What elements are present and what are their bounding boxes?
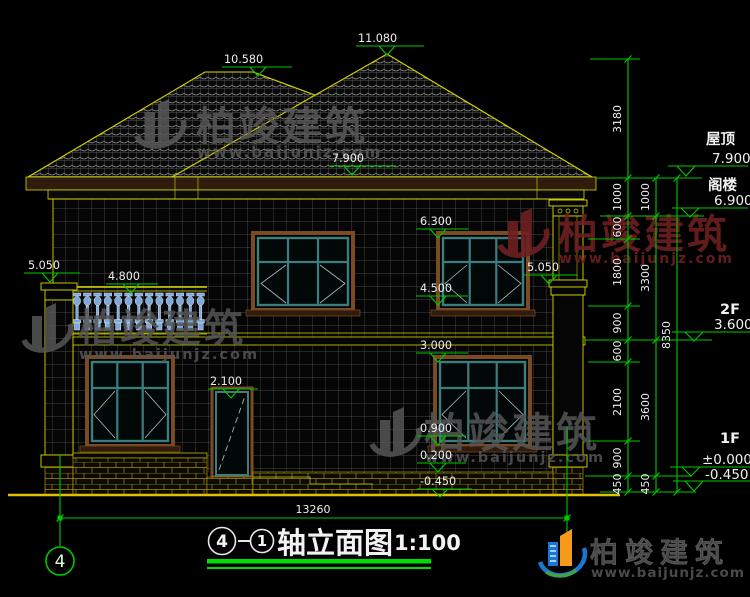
marker-w1-top: 3.000 <box>420 339 452 352</box>
dim-value: 900 <box>611 313 624 334</box>
marker-grade: -0.450 <box>420 475 456 488</box>
level-value-2f: 3.600 <box>714 317 750 333</box>
dim-value: 450 <box>611 474 624 495</box>
brand-logo: 柏竣建筑 www.baijunjz.com <box>540 529 745 581</box>
marker-eave: 7.900 <box>332 152 364 165</box>
dim-value: 3600 <box>639 393 652 421</box>
level-value-attic: 6.900 <box>714 193 750 209</box>
level-label-2f: 2F <box>720 302 740 318</box>
entry-door <box>212 388 252 477</box>
title-axis-from-label: 4 <box>216 532 228 552</box>
title-underline-thick <box>207 559 431 564</box>
window-1f-left <box>80 357 180 452</box>
title-axis-to-label: 1 <box>257 532 267 550</box>
dim-value: 3180 <box>611 105 624 133</box>
elevation-canvas: 柏竣建筑 www.baijunjz.com 柏竣建筑 www.baijunjz.… <box>0 0 750 597</box>
dim-value: 900 <box>611 448 624 469</box>
marker-w2-top: 6.300 <box>420 215 452 228</box>
marker-parapet-right: 5.050 <box>527 261 559 274</box>
window-2f-right <box>431 233 535 316</box>
dim-value: 1000 <box>611 183 624 211</box>
title-scale: 1:100 <box>394 531 461 555</box>
dim-value: 2100 <box>611 388 624 416</box>
dim-value: 3300 <box>639 264 652 292</box>
window-2f-left <box>246 233 360 316</box>
marker-rail: 4.800 <box>108 270 140 283</box>
total-width-dim: 13260 <box>296 503 331 516</box>
watermark-brand: 柏竣建筑 <box>78 307 246 352</box>
level-label-roof: 屋顶 <box>706 131 735 148</box>
title-underline-thin <box>207 567 431 569</box>
level-label-attic: 阁楼 <box>708 176 737 194</box>
marker-ridge-left: 10.580 <box>224 53 263 66</box>
watermark-site: www.baijunjz.com <box>79 347 259 363</box>
brand-logo-site: www.baijunjz.com <box>591 565 745 581</box>
dim-value: 1000 <box>639 183 652 211</box>
dim-value: 1800 <box>611 258 624 286</box>
marker-parapet-left: 5.050 <box>28 259 60 272</box>
marker-porch: 0.200 <box>420 449 452 462</box>
marker-w2-sill: 4.500 <box>420 282 452 295</box>
level-value-1f: ±0.000 <box>702 452 750 468</box>
eave-fascia <box>26 177 596 190</box>
level-value-roof: 7.900 <box>712 151 750 167</box>
title-text: 轴立面图 <box>277 526 393 560</box>
marker-door-top: 2.100 <box>210 375 242 388</box>
axis-bubble-4-label: 4 <box>55 552 66 572</box>
dim-chain-outer: 8350 <box>660 321 673 349</box>
eave-soffit <box>48 190 584 199</box>
marker-w1-sill: 0.900 <box>420 422 452 435</box>
dim-value: 600 <box>611 341 624 362</box>
marker-ridge-right: 11.080 <box>358 32 397 45</box>
cad-elevation-drawing: 柏竣建筑 www.baijunjz.com 柏竣建筑 www.baijunjz.… <box>0 0 750 597</box>
level-label-1f: 1F <box>720 431 740 447</box>
dim-value: 8350 <box>660 321 673 349</box>
dim-value: 450 <box>639 474 652 495</box>
dim-value: 600 <box>611 217 624 238</box>
